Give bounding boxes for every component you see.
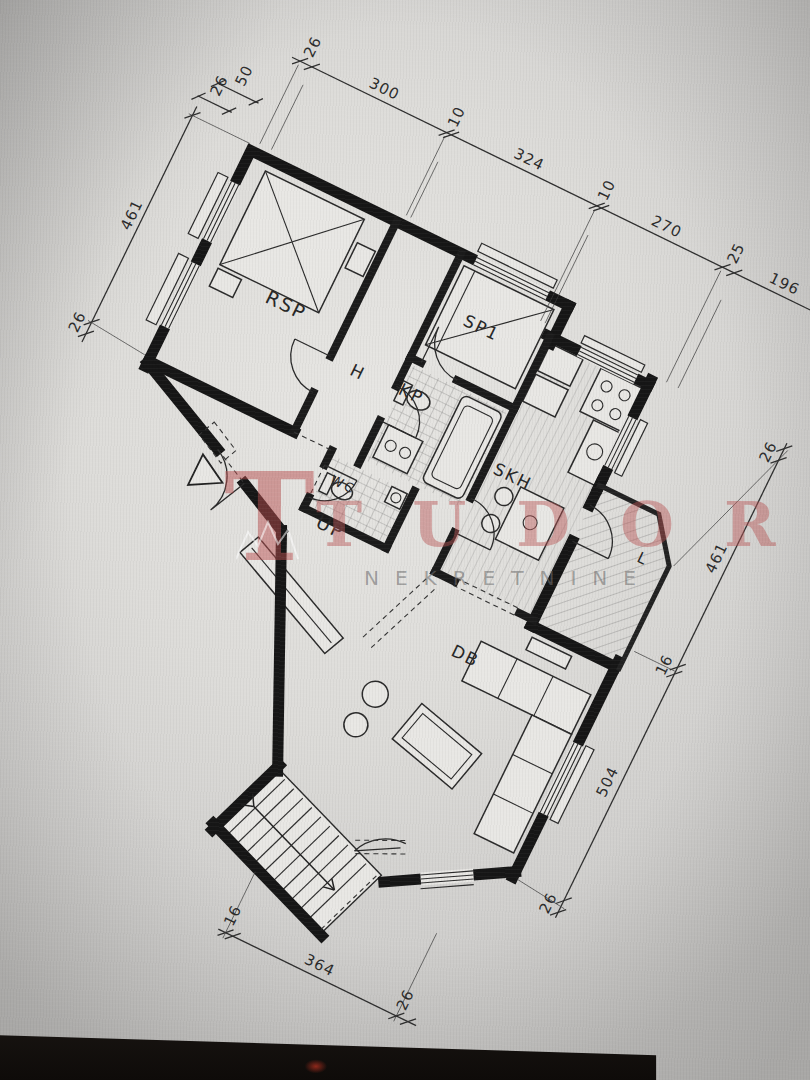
photographed-screen: RSP SP1 H KP WC SKH UP DB L — [0, 0, 810, 1080]
dim-bottom-364: 364 — [302, 950, 338, 980]
dim-top-324: 324 — [511, 145, 547, 175]
pouf — [340, 709, 372, 741]
dim-top-10b: 10 — [594, 177, 619, 204]
dim-top-270: 270 — [649, 212, 685, 242]
dim-top-25: 25 — [723, 240, 748, 267]
pouf — [358, 677, 393, 712]
dim-right-461: 461 — [701, 540, 731, 576]
dim-top-300: 300 — [366, 74, 402, 104]
coffee-table — [392, 704, 481, 789]
dim-left-26: 26 — [65, 308, 90, 335]
floor-plan-drawing: RSP SP1 H KP WC SKH UP DB L — [0, 0, 810, 1080]
dim-top-10a: 10 — [444, 103, 469, 130]
dim-bottom-26: 26 — [393, 986, 418, 1013]
dim-pair-26: 26 — [207, 72, 232, 99]
dim-top-196: 196 — [766, 269, 802, 299]
dim-top-26: 26 — [300, 33, 325, 60]
dim-left-461: 461 — [117, 197, 147, 233]
dim-right-504: 504 — [592, 764, 622, 800]
dim-bottom-16: 16 — [220, 902, 245, 929]
room-label-hall: H — [347, 360, 369, 384]
entrance-triangle-marker — [188, 454, 230, 498]
dimension-lines: 26 300 10 324 10 270 25 196 50 26 — [0, 0, 810, 1068]
rsp-door — [277, 339, 330, 392]
dim-pair-50: 50 — [231, 62, 256, 89]
